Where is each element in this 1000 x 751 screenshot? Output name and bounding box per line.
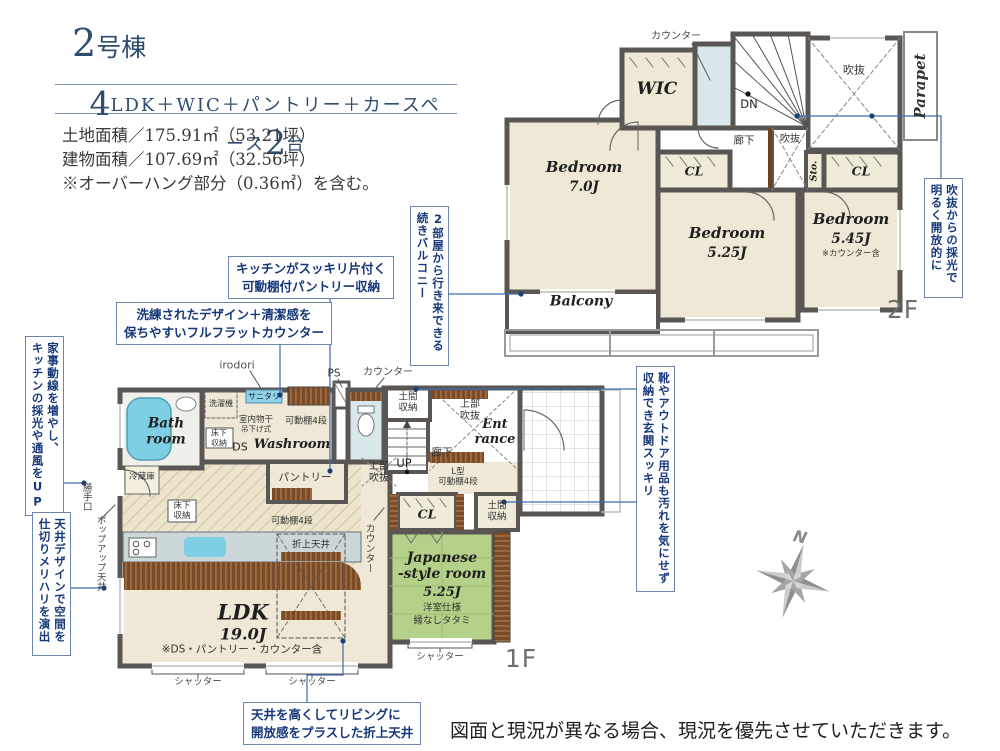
hall-label-1f: 廊下	[432, 447, 453, 460]
compass-rose	[746, 534, 840, 628]
parapet-label: Parapet	[911, 53, 929, 118]
folded-ceiling-label: 折上天井	[292, 539, 330, 550]
shutter3-label: シャッター	[416, 651, 464, 662]
counter-vertical-label: カウンター	[362, 523, 374, 573]
building-suffix: 号棟	[96, 33, 146, 62]
cl-label-1f: CL	[418, 507, 437, 522]
japanese-room-note1: 洋室仕様	[423, 602, 461, 613]
doma-top-label: 土間 収納	[398, 392, 417, 415]
land-area: 土地面積／175.91㎡（53.21坪）	[62, 124, 379, 148]
callout-ceiling-design: 天井デザインで空間を 仕切りメリハリを演出	[32, 512, 71, 656]
callout-balcony-rooms: 2部屋から行き来できる 続きバルコニー	[410, 206, 449, 366]
callout-pantry-storage: キッチンがスッキリ片付く 可動棚付パントリー収納	[228, 256, 394, 299]
doma-low-label: 土間 収納	[487, 501, 506, 524]
upper-void-left-label: 上部 吹抜	[369, 461, 389, 485]
void-stair-label: 吹抜	[780, 134, 800, 146]
bedroom1-label: Bedroom	[546, 158, 623, 176]
irodori-label: irodori	[219, 358, 254, 371]
ps-label: PS	[328, 368, 341, 381]
callout-flat-counter: 洗練されたデザイン＋清潔感を 保ちやすいフルフラットカウンター	[116, 302, 332, 345]
backdoor-label: 勝手口	[80, 483, 91, 512]
indoor-drying-sub: 吊下げ式	[241, 425, 271, 434]
callout-folded-ceiling: 天井を高くしてリビングに 開放感をプラスした折上天井	[243, 702, 421, 745]
entrance-label: Ent rance	[475, 418, 516, 448]
bedroom2-label: Bedroom	[689, 224, 766, 242]
hall-label-2f: 廊下	[734, 135, 755, 148]
shelf-washroom-label: 可動棚4段	[285, 417, 327, 428]
underfloor-kitchen-label: 床下 収納	[173, 501, 190, 521]
dn-label: DN	[740, 98, 757, 112]
layout-count: 4	[90, 84, 111, 123]
l-shelf-label: L型 可動棚4段	[438, 467, 477, 487]
japanese-room-size: 5.25J	[423, 585, 461, 601]
sto-label: Sto.	[808, 161, 819, 182]
underfloor-washroom-label: 床下 収納	[211, 428, 227, 447]
japanese-room-label: Japanese -style room	[398, 550, 486, 582]
void-main-label: 吹抜	[843, 63, 865, 76]
fridge-label: 冷蔵庫	[129, 472, 155, 482]
counter-label-2f: カウンター	[651, 31, 701, 43]
shutter2-label: シャッター	[288, 676, 336, 687]
bedroom3-label: Bedroom	[813, 210, 890, 228]
sanitary-label: サニタリ	[248, 392, 280, 402]
callout-genkan: 靴やアウトドア用品も汚れを気にせず 収納でき玄関スッキリ	[636, 366, 675, 592]
cl1-label-2f: CL	[685, 164, 704, 179]
floor2-label: 2F	[887, 295, 919, 325]
disclaimer-text: 図面と現況が異なる場合、現況を優先させていただきます。	[450, 716, 961, 743]
area-info: 土地面積／175.91㎡（53.21坪） 建物面積／107.69㎡（32.56坪…	[62, 124, 379, 196]
pantry-label: パントリー	[278, 472, 331, 485]
counter-label-1f-top: カウンター	[363, 367, 413, 379]
shelf-pantry-label: 可動棚4段	[271, 517, 313, 528]
bedroom3-size: 5.45J	[831, 231, 870, 247]
overhang-note: ※オーバーハング部分（0.36㎡）を含む。	[62, 172, 379, 196]
ldk-size: 19.0J	[220, 624, 267, 643]
ldk-note: ※DS・パントリー・カウンター含	[162, 644, 323, 657]
building-area: 建物面積／107.69㎡（32.56坪）	[62, 148, 379, 172]
washer-label: 洗濯機	[209, 399, 233, 409]
bedroom2-size: 5.25J	[707, 245, 746, 261]
floor1-label: 1F	[505, 644, 537, 674]
japanese-room-note2: 縁なしタタミ	[413, 615, 470, 626]
balcony-label: Balcony	[550, 294, 612, 311]
washroom-label: Washroom	[254, 437, 331, 453]
bedroom3-note: ※カウンター含	[822, 249, 880, 259]
up-label: UP	[396, 457, 411, 471]
wic-label: WIC	[637, 79, 678, 99]
ds-label: DS	[232, 440, 247, 453]
ldk-label: LDK	[217, 599, 268, 624]
building-number: 2	[72, 21, 96, 65]
bathroom-label: Bath room	[146, 416, 185, 447]
callout-housework: 家事動線を増やし、 キッチンの採光や通風をUP	[25, 336, 64, 516]
shutter1-label: シャッター	[174, 676, 222, 687]
callout-void-light: 吹抜からの採光で 明るく開放的に	[924, 178, 963, 298]
bedroom1-size: 7.0J	[569, 179, 599, 195]
popup-ceiling-label: ポップアップ天井	[94, 515, 105, 591]
cl2-label-2f: CL	[852, 164, 871, 179]
floorplan-page: 2号棟 4LDK＋WIC＋パントリー＋カースペース2台 土地面積／175.91㎡…	[0, 0, 1000, 751]
building-title: 2号棟	[72, 24, 146, 64]
